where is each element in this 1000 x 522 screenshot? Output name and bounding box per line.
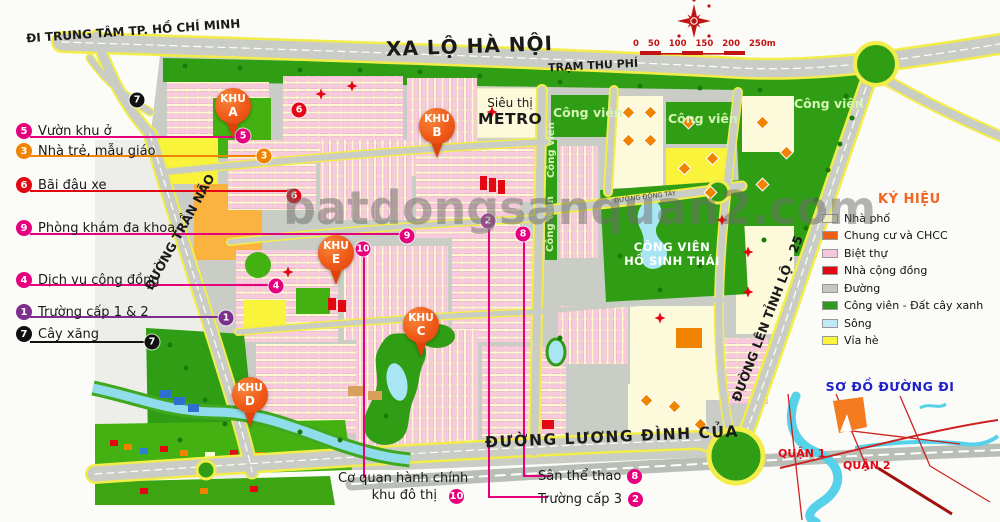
supermarket-line2: METRO xyxy=(478,110,542,129)
callout-number-badge: 3 xyxy=(16,143,32,159)
masterplan-map-page: 7 5 3 6 6 9 10 4 2 8 1 7 KHU A KHU B KHU… xyxy=(0,0,1000,522)
supermarket-line1: Siêu thị xyxy=(478,96,542,110)
legend-item: Công viên - Đất cây xanh xyxy=(822,299,998,312)
callout-number-badge: 8 xyxy=(627,469,642,484)
zone-pin-khu-e: KHU E xyxy=(316,235,356,287)
pin-letter: E xyxy=(332,253,340,265)
callout-number-badge: 9 xyxy=(16,220,32,236)
callout-sports: Sân thể thao 8 xyxy=(538,469,642,484)
map-marker: 4 xyxy=(269,279,284,294)
legend-swatch xyxy=(822,249,838,258)
callout-school-1-2: 1 Trường cấp 1 & 2 xyxy=(16,304,149,320)
zone-pin-khu-c: KHU C xyxy=(401,307,441,359)
scale-tick: 50 xyxy=(648,39,660,49)
scale-tick: 250m xyxy=(749,39,776,49)
legend-label: Sông xyxy=(844,317,872,330)
map-marker: 6 xyxy=(292,103,307,118)
callout-admin-line1: Cơ quan hành chính xyxy=(338,471,464,488)
scale-tick: 100 xyxy=(669,39,687,49)
legend-swatch xyxy=(822,336,838,345)
pin-letter: C xyxy=(417,325,426,337)
eco-park-line2: HỒ SINH THÁI xyxy=(606,254,738,268)
map-marker: 1 xyxy=(219,311,234,326)
legend-label: Vỉa hè xyxy=(844,334,879,347)
callout-number-badge: 4 xyxy=(16,272,32,288)
legend-label: Nhà cộng đồng xyxy=(844,264,927,277)
compass-rose-icon xyxy=(677,0,711,38)
legend-swatch xyxy=(822,266,838,275)
callout-number-badge: 1 xyxy=(16,304,32,320)
callout-school-3: Trường cấp 3 2 xyxy=(538,492,643,507)
minimap-district1-label: QUẬN 1 xyxy=(778,447,826,460)
legend-item: Đường xyxy=(822,282,998,295)
pin-prefix: KHU xyxy=(408,313,433,324)
legend-swatch xyxy=(822,319,838,328)
watermark: batdongsanquan2.com xyxy=(283,181,876,235)
legend-label: Đường xyxy=(844,282,880,295)
callout-number-badge: 2 xyxy=(628,492,643,507)
zone-pin-khu-b: KHU B xyxy=(417,108,457,160)
callout-admin-line2: khu đô thị xyxy=(372,488,437,505)
callout-gas-station: 7 Cây xăng xyxy=(16,326,99,342)
pin-letter: D xyxy=(245,395,255,407)
map-marker: 3 xyxy=(257,149,272,164)
callout-kindergarten: 3 Nhà trẻ, mẫu giáo xyxy=(16,143,156,159)
scale-tick: 150 xyxy=(696,39,714,49)
callout-label: Trường cấp 1 & 2 xyxy=(38,305,149,320)
callout-garden: 5 Vườn khu ở xyxy=(16,123,112,139)
pin-bulb-icon: KHU A xyxy=(215,88,251,124)
callout-label: Cây xăng xyxy=(38,327,99,342)
callout-label: Vườn khu ở xyxy=(38,124,112,139)
legend-item: Sông xyxy=(822,317,998,330)
callout-clinic: 9 Phòng khám đa khoa xyxy=(16,220,175,236)
eco-park-label: CÔNG VIÊN HỒ SINH THÁI xyxy=(606,240,738,269)
callout-label: Nhà trẻ, mẫu giáo xyxy=(38,144,156,159)
supermarket-label: Siêu thị METRO xyxy=(478,96,542,129)
minimap-title: SƠ ĐỒ ĐƯỜNG ĐI xyxy=(802,379,978,394)
callout-number-badge: 10 xyxy=(449,489,464,504)
legend-title: KÝ HIỆU xyxy=(878,192,998,207)
pin-bulb-icon: KHU B xyxy=(419,108,455,144)
pin-bulb-icon: KHU E xyxy=(318,235,354,271)
callout-line xyxy=(363,252,365,478)
scale-tick: 200 xyxy=(722,39,740,49)
legend-item: Biệt thự xyxy=(822,247,998,260)
eco-park-line1: CÔNG VIÊN xyxy=(606,240,738,254)
callout-parking: 6 Bãi đậu xe xyxy=(16,177,107,193)
legend-item: Nhà cộng đồng xyxy=(822,264,998,277)
pin-prefix: KHU xyxy=(237,383,262,394)
legend-label: Công viên - Đất cây xanh xyxy=(844,299,983,312)
pin-prefix: KHU xyxy=(323,241,348,252)
pin-letter: A xyxy=(228,106,237,118)
legend-label: Biệt thự xyxy=(844,247,887,260)
minimap-district2-label: QUẬN 2 xyxy=(843,459,891,472)
callout-number-badge: 6 xyxy=(16,177,32,193)
park-label: Công viên xyxy=(668,111,738,126)
callout-number-badge: 5 xyxy=(16,123,32,139)
zone-pin-khu-a: KHU A xyxy=(213,88,253,140)
park-label: Công viên xyxy=(553,105,623,120)
zone-pin-khu-d: KHU D xyxy=(230,377,270,429)
scale-bar xyxy=(640,51,745,55)
callout-number-badge: 7 xyxy=(16,326,32,342)
park-label: Công viên xyxy=(794,96,864,111)
pin-bulb-icon: KHU D xyxy=(232,377,268,413)
legend-swatch xyxy=(822,284,838,293)
callout-line xyxy=(488,226,490,497)
pin-prefix: KHU xyxy=(220,94,245,105)
legend-swatch xyxy=(822,301,838,310)
pin-letter: B xyxy=(432,126,441,138)
map-marker: 7 xyxy=(145,335,160,350)
callout-label: Bãi đậu xe xyxy=(38,178,107,193)
callout-label: Trường cấp 3 xyxy=(538,492,622,507)
map-marker: 7 xyxy=(130,93,145,108)
scale-tick-labels: 0 50 100 150 200 250m xyxy=(633,39,776,49)
callout-admin: Cơ quan hành chính khu đô thị 10 xyxy=(338,471,464,505)
callout-label: Sân thể thao xyxy=(538,469,621,484)
legend-item: Vỉa hè xyxy=(822,334,998,347)
callout-community-service: 4 Dịch vụ cộng đồng xyxy=(16,272,160,288)
park-label-vertical: Công viên xyxy=(546,122,557,178)
pin-prefix: KHU xyxy=(424,114,449,125)
scale-tick: 0 xyxy=(633,39,639,49)
pin-bulb-icon: KHU C xyxy=(403,307,439,343)
map-marker: 10 xyxy=(356,242,371,257)
callout-label: Phòng khám đa khoa xyxy=(38,221,175,236)
